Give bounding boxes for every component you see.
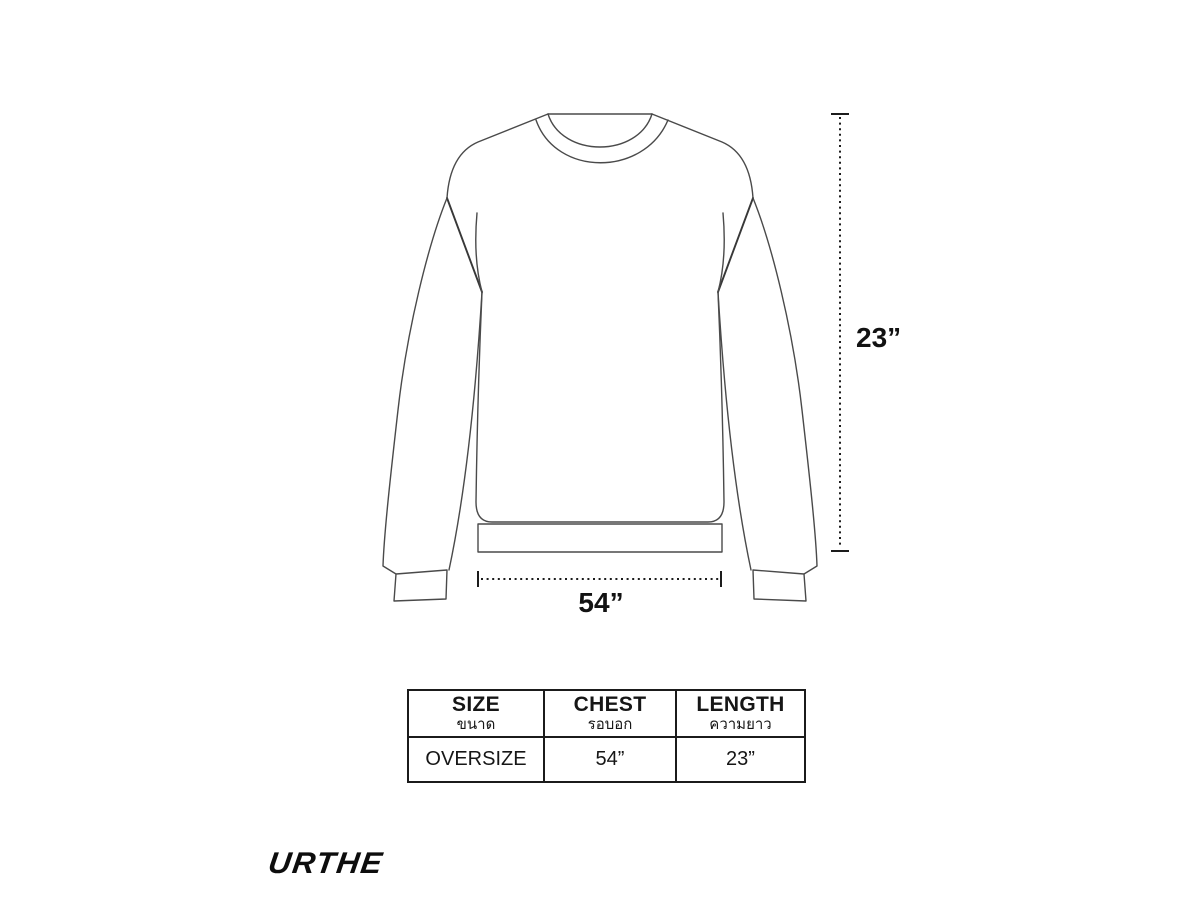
brand-logo: URTHE <box>266 847 385 881</box>
chest-dimension-label: 54” <box>578 587 623 618</box>
size-table-body: OVERSIZE 54” 23” <box>408 737 805 782</box>
body-outline <box>476 292 724 522</box>
left-cuff <box>394 570 447 601</box>
cell-chest-value: 54” <box>544 737 676 782</box>
length-dimension: 23” <box>831 114 901 551</box>
right-cuff <box>753 570 806 601</box>
left-armhole-seam <box>447 198 482 292</box>
collar-outer-curve <box>536 120 668 163</box>
left-shoulder-line <box>447 114 548 198</box>
column-header-length-th: ความยาว <box>677 717 804 734</box>
cell-size-value: OVERSIZE <box>408 737 544 782</box>
size-table-header-row: SIZE ขนาด CHEST รอบอก LENGTH ความยาว <box>408 690 805 737</box>
garment-diagram: 23” 54” <box>0 0 1200 660</box>
size-table-header: SIZE ขนาด CHEST รอบอก LENGTH ความยาว <box>408 690 805 737</box>
right-shoulder-line <box>652 114 753 198</box>
chest-dimension: 54” <box>478 571 721 618</box>
column-header-length-en: LENGTH <box>677 694 804 716</box>
size-chart-page: 23” 54” SIZE ขนาด CHEST รอบอก LENGT <box>0 0 1200 900</box>
size-table-row-oversize: OVERSIZE 54” 23” <box>408 737 805 782</box>
hem-band <box>478 524 722 552</box>
right-sleeve-outer-edge <box>753 198 817 574</box>
cell-length-value: 23” <box>676 737 805 782</box>
column-header-size-en: SIZE <box>409 694 543 716</box>
size-table: SIZE ขนาด CHEST รอบอก LENGTH ความยาว OVE… <box>407 689 806 783</box>
column-header-chest-en: CHEST <box>545 694 675 716</box>
right-armhole-seam <box>718 198 753 292</box>
length-dimension-label: 23” <box>856 322 901 353</box>
column-header-size-th: ขนาด <box>409 717 543 734</box>
column-header-size: SIZE ขนาด <box>408 690 544 737</box>
sweatshirt-drawing <box>383 114 817 601</box>
left-sleeve-outer-edge <box>383 198 447 574</box>
column-header-chest: CHEST รอบอก <box>544 690 676 737</box>
column-header-chest-th: รอบอก <box>545 717 675 734</box>
collar-inner-curve <box>548 114 652 147</box>
column-header-length: LENGTH ความยาว <box>676 690 805 737</box>
